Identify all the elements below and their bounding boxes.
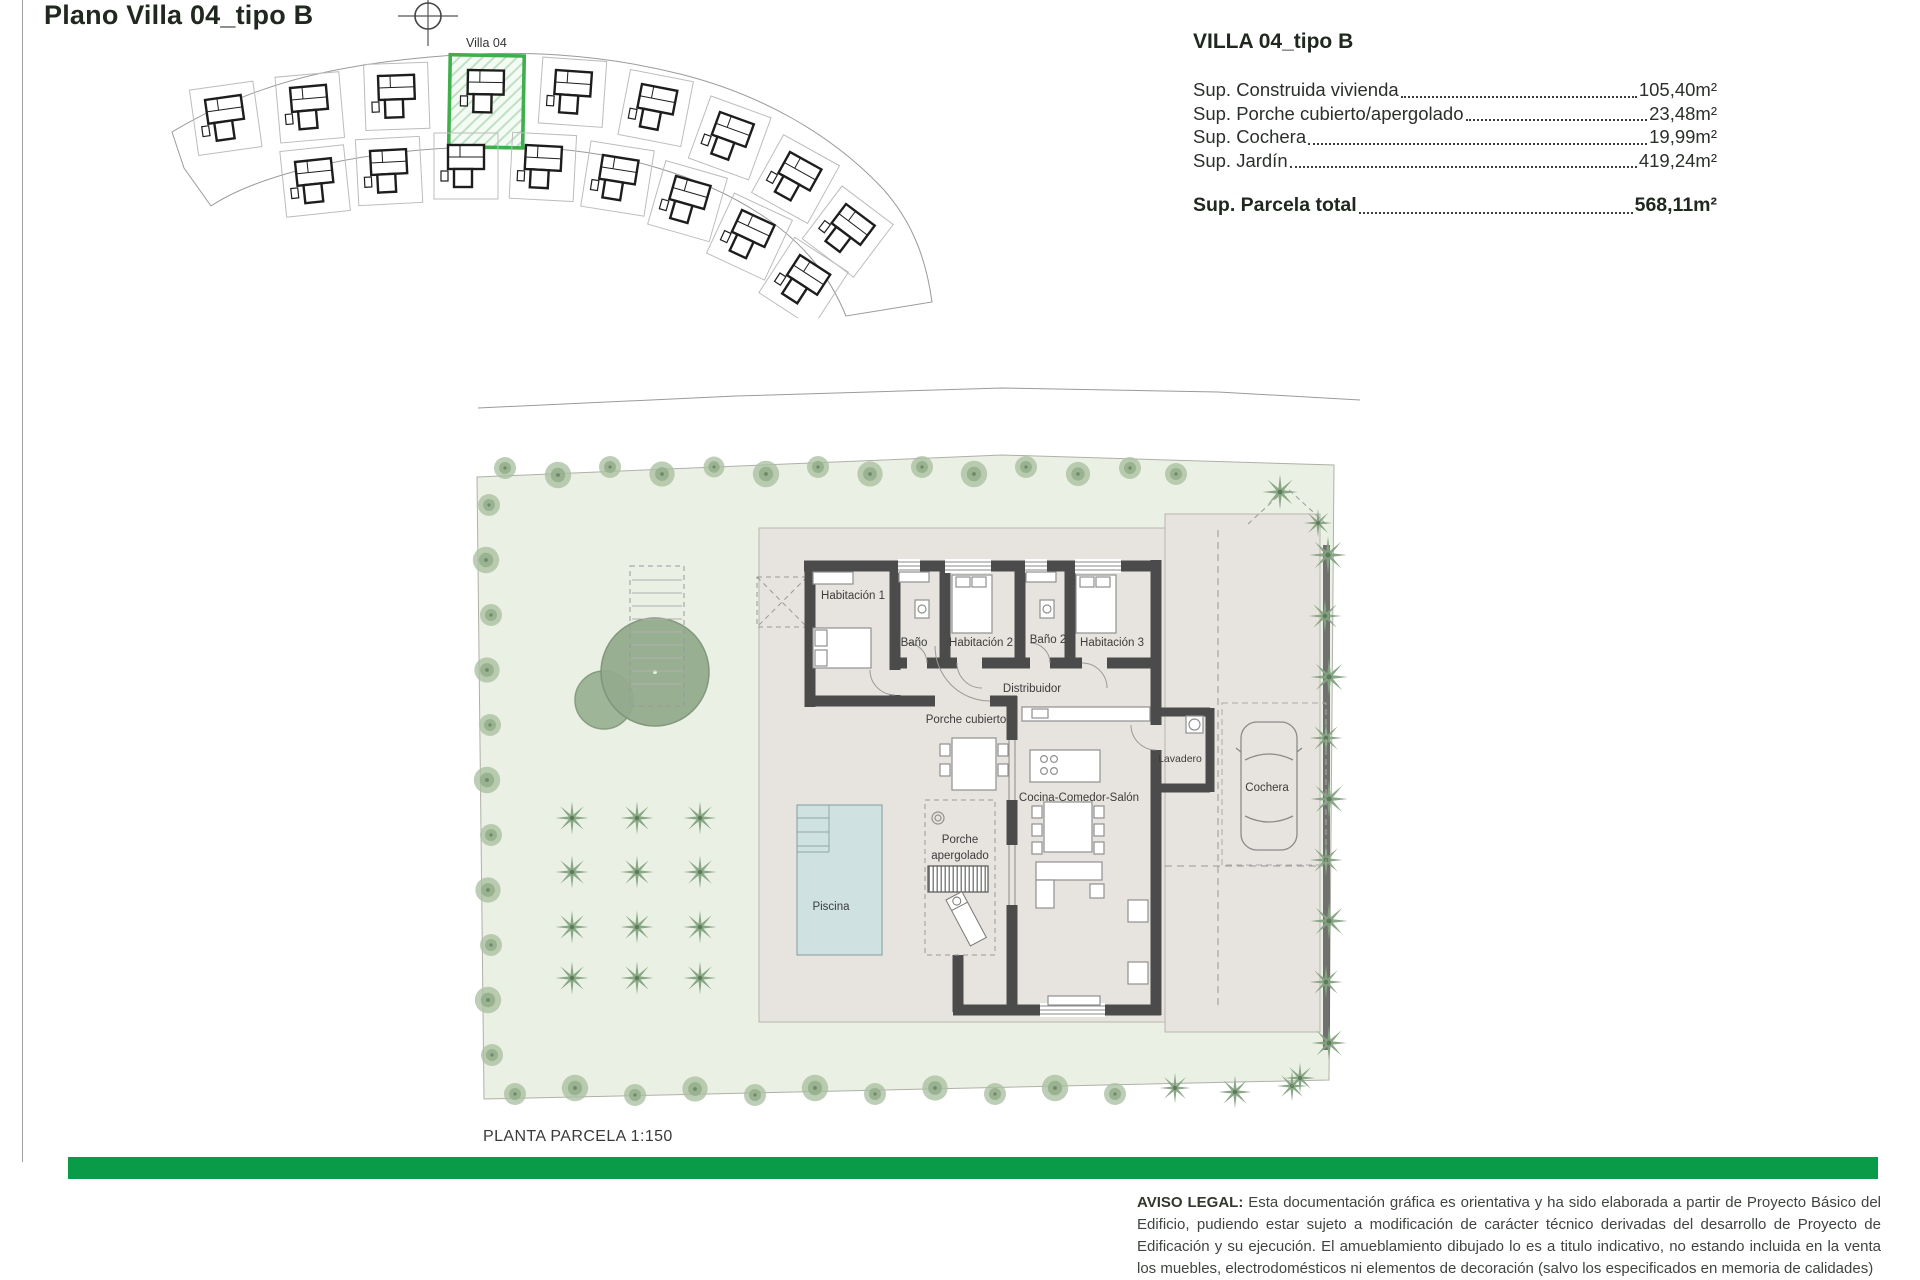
site-villas-inner-row [280,132,849,318]
surface-value: 23,48m² [1649,102,1717,126]
page-title: Plano Villa 04_tipo B [44,0,313,31]
pool [797,805,882,955]
dot-leader [1308,142,1647,145]
legal-disclaimer-title: AVISO LEGAL: [1137,1194,1243,1211]
parcel-plan: Habitación 1 Baño Habitación 2 Baño 2 Ha… [440,380,1360,1120]
room-label-cocina-comedor-salon: Cocina-Comedor-Salón [1019,792,1139,804]
surface-info-panel: VILLA 04_tipo B Sup. Construida vivienda… [1193,30,1717,218]
surface-row: Sup. Porche cubierto/apergolado 23,48m² [1193,102,1717,126]
plan-caption: PLANTA PARCELA 1:150 [483,1128,673,1146]
surface-value: 105,40m² [1639,78,1717,102]
surface-value: 419,24m² [1639,149,1717,173]
site-villa-04-label: Villa 04 [466,36,507,50]
surface-row: Sup. Jardín 419,24m² [1193,149,1717,173]
pergola-slats [928,866,988,892]
surface-total-value: 568,11m² [1635,194,1717,218]
room-label-lavadero: Lavadero [1158,753,1202,765]
room-label-porche-cubierto: Porche cubierto [926,714,1007,726]
legal-disclaimer: AVISO LEGAL: Esta documentación gráfica … [1137,1192,1881,1280]
room-label-cochera: Cochera [1245,782,1289,794]
surface-label: Sup. Porche cubierto/apergolado [1193,102,1464,126]
room-label-habitacion-2: Habitación 2 [949,637,1013,649]
page-frame-line [22,0,23,1162]
plan-sheet: Plano Villa 04_tipo B [0,0,1920,1280]
dot-leader [1401,95,1637,98]
room-label-habitacion-3: Habitación 3 [1080,637,1144,649]
room-label-piscina: Piscina [812,901,850,913]
room-label-habitacion-1: Habitación 1 [821,590,885,602]
dot-leader [1359,211,1633,214]
surface-total-label: Sup. Parcela total [1193,194,1357,218]
surface-row: Sup. Cochera 19,99m² [1193,125,1717,149]
surface-label: Sup. Cochera [1193,125,1306,149]
site-plan: Villa 04 [150,28,950,318]
info-panel-title: VILLA 04_tipo B [1193,30,1717,54]
surface-label: Sup. Construida vivienda [1193,78,1399,102]
surface-row: Sup. Construida vivienda 105,40m² [1193,78,1717,102]
room-label-bano: Baño [901,637,928,649]
surface-total-row: Sup. Parcela total 568,11m² [1193,194,1717,218]
dot-leader [1466,118,1648,121]
legal-disclaimer-body: Esta documentación gráfica es orientativ… [1137,1194,1881,1277]
surface-label: Sup. Jardín [1193,149,1288,173]
survey-line [478,388,1360,408]
room-label-porche-apergolado-1: Porche [942,834,978,846]
room-label-porche-apergolado-2: apergolado [931,850,989,862]
dot-leader [1290,165,1637,168]
footer-accent-bar [68,1157,1878,1179]
room-label-distribuidor: Distribuidor [1003,683,1061,695]
room-label-bano-2: Baño 2 [1030,634,1066,646]
surface-value: 19,99m² [1649,125,1717,149]
